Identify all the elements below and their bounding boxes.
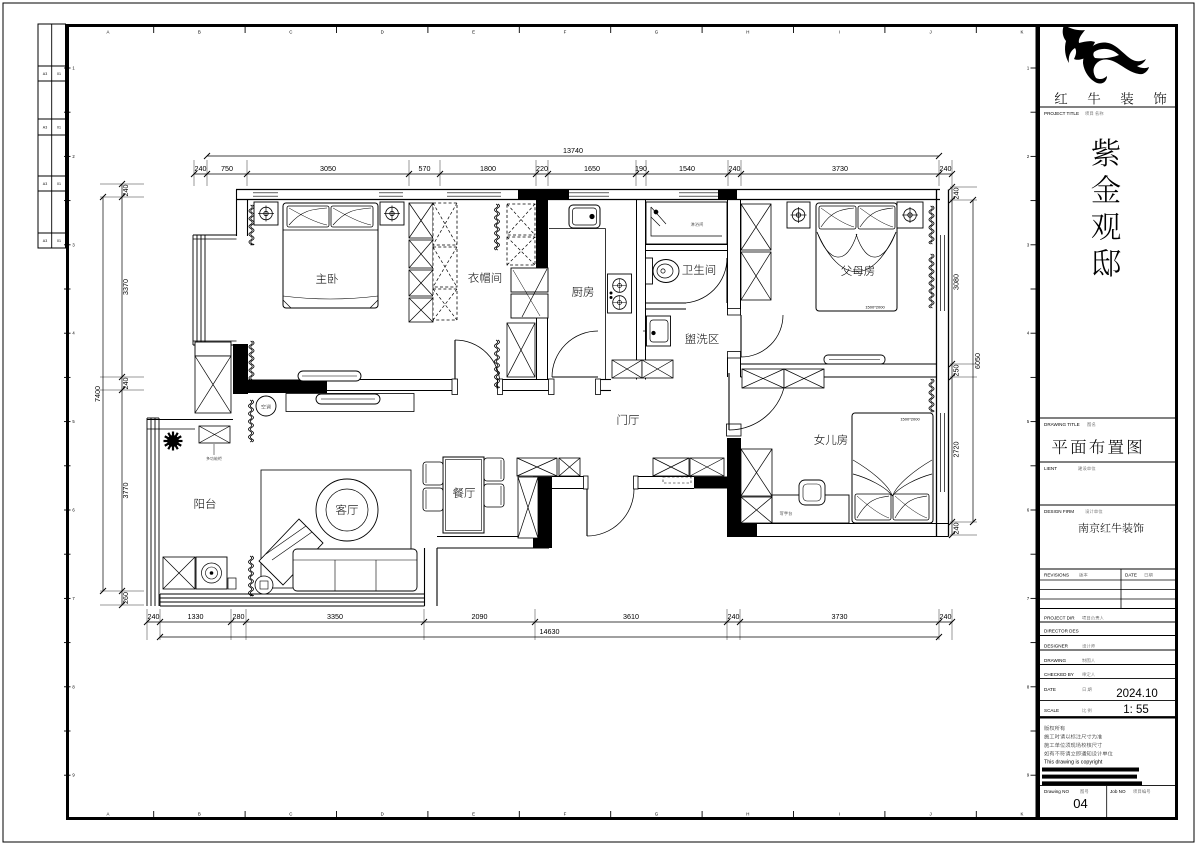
- svg-text:3050: 3050: [320, 164, 336, 173]
- svg-text:240: 240: [121, 185, 130, 197]
- svg-text:240: 240: [728, 612, 740, 621]
- svg-text:G: G: [655, 812, 659, 817]
- svg-text:3370: 3370: [121, 279, 130, 295]
- svg-text:C: C: [289, 812, 292, 817]
- svg-text:1: 55: 1: 55: [1123, 704, 1149, 716]
- svg-text:PROJECT DIR: PROJECT DIR: [1044, 616, 1075, 621]
- svg-text:Job NO: Job NO: [1110, 789, 1126, 794]
- svg-text:2024.10: 2024.10: [1116, 688, 1158, 700]
- svg-text:A3: A3: [43, 72, 47, 76]
- svg-text:3080: 3080: [951, 274, 960, 290]
- svg-text:1500*2000: 1500*2000: [900, 417, 920, 422]
- svg-text:3770: 3770: [121, 483, 130, 499]
- svg-text:01: 01: [57, 239, 61, 243]
- svg-text:3610: 3610: [623, 612, 639, 621]
- svg-text:CHECKED BY: CHECKED BY: [1044, 672, 1074, 677]
- svg-text:240: 240: [195, 164, 207, 173]
- svg-text:240: 240: [121, 378, 130, 390]
- svg-text:01: 01: [57, 126, 61, 130]
- svg-text:570: 570: [419, 164, 431, 173]
- svg-text:A3: A3: [43, 239, 47, 243]
- svg-text:04: 04: [1073, 796, 1087, 811]
- svg-text:K: K: [1021, 812, 1024, 817]
- svg-text:PROJECT TITLE: PROJECT TITLE: [1044, 111, 1079, 116]
- svg-text:DIRECTOR DES: DIRECTOR DES: [1044, 629, 1079, 634]
- svg-text:240: 240: [951, 188, 960, 200]
- svg-text:2720: 2720: [951, 442, 960, 458]
- svg-text:1500*2000: 1500*2000: [865, 305, 885, 310]
- svg-text:14630: 14630: [540, 627, 560, 636]
- svg-text:H: H: [746, 812, 749, 817]
- svg-text:F: F: [564, 30, 567, 35]
- svg-text:LIENT: LIENT: [1044, 466, 1057, 471]
- svg-text:B: B: [198, 812, 201, 817]
- svg-text:J: J: [929, 812, 931, 817]
- svg-text:1800: 1800: [480, 164, 496, 173]
- svg-text:6050: 6050: [973, 353, 982, 369]
- svg-text:01: 01: [57, 72, 61, 76]
- svg-text:13740: 13740: [563, 146, 583, 155]
- svg-text:REVISIONS: REVISIONS: [1044, 573, 1069, 578]
- svg-text:A: A: [107, 30, 110, 35]
- svg-text:750: 750: [221, 164, 233, 173]
- svg-text:01: 01: [57, 182, 61, 186]
- svg-text:B: B: [198, 30, 201, 35]
- svg-text:220: 220: [536, 164, 548, 173]
- svg-text:DATE: DATE: [1125, 573, 1137, 578]
- svg-text:2090: 2090: [472, 612, 488, 621]
- svg-text:1650: 1650: [584, 164, 600, 173]
- svg-text:7400: 7400: [93, 386, 102, 402]
- svg-text:A3: A3: [43, 182, 47, 186]
- svg-text:D: D: [381, 30, 384, 35]
- svg-text:260: 260: [121, 592, 130, 604]
- svg-text:DRAWING TITLE: DRAWING TITLE: [1044, 422, 1080, 427]
- svg-text:250: 250: [951, 365, 960, 377]
- svg-text:G: G: [655, 30, 659, 35]
- svg-text:240: 240: [148, 612, 160, 621]
- svg-text:H: H: [746, 30, 749, 35]
- svg-text:E: E: [472, 812, 475, 817]
- svg-text:DESIGNER: DESIGNER: [1044, 644, 1069, 649]
- svg-text:A3: A3: [43, 126, 47, 130]
- svg-text:240: 240: [940, 612, 952, 621]
- svg-text:F: F: [564, 812, 567, 817]
- svg-text:190: 190: [635, 164, 647, 173]
- svg-text:K: K: [1021, 30, 1024, 35]
- svg-text:I: I: [839, 812, 840, 817]
- svg-text:Drawing NO: Drawing NO: [1044, 789, 1069, 794]
- svg-text:DESIGN FIRM: DESIGN FIRM: [1044, 509, 1074, 514]
- svg-text:I: I: [839, 30, 840, 35]
- svg-text:3730: 3730: [832, 164, 848, 173]
- svg-text:280: 280: [233, 612, 245, 621]
- svg-text:A: A: [107, 812, 110, 817]
- svg-text:This drawing is copyright: This drawing is copyright: [1044, 760, 1103, 766]
- svg-text:E: E: [472, 30, 475, 35]
- svg-text:240: 240: [940, 164, 952, 173]
- svg-text:J: J: [929, 30, 931, 35]
- svg-text:3730: 3730: [832, 612, 848, 621]
- svg-text:DRAWING: DRAWING: [1044, 658, 1066, 663]
- svg-text:1540: 1540: [679, 164, 695, 173]
- svg-text:SCALE: SCALE: [1044, 708, 1059, 713]
- svg-text:DATE: DATE: [1044, 687, 1056, 692]
- svg-text:D: D: [381, 812, 384, 817]
- svg-text:240: 240: [951, 523, 960, 535]
- svg-text:C: C: [289, 30, 292, 35]
- svg-text:240: 240: [729, 164, 741, 173]
- svg-text:3350: 3350: [327, 612, 343, 621]
- svg-text:1330: 1330: [188, 612, 204, 621]
